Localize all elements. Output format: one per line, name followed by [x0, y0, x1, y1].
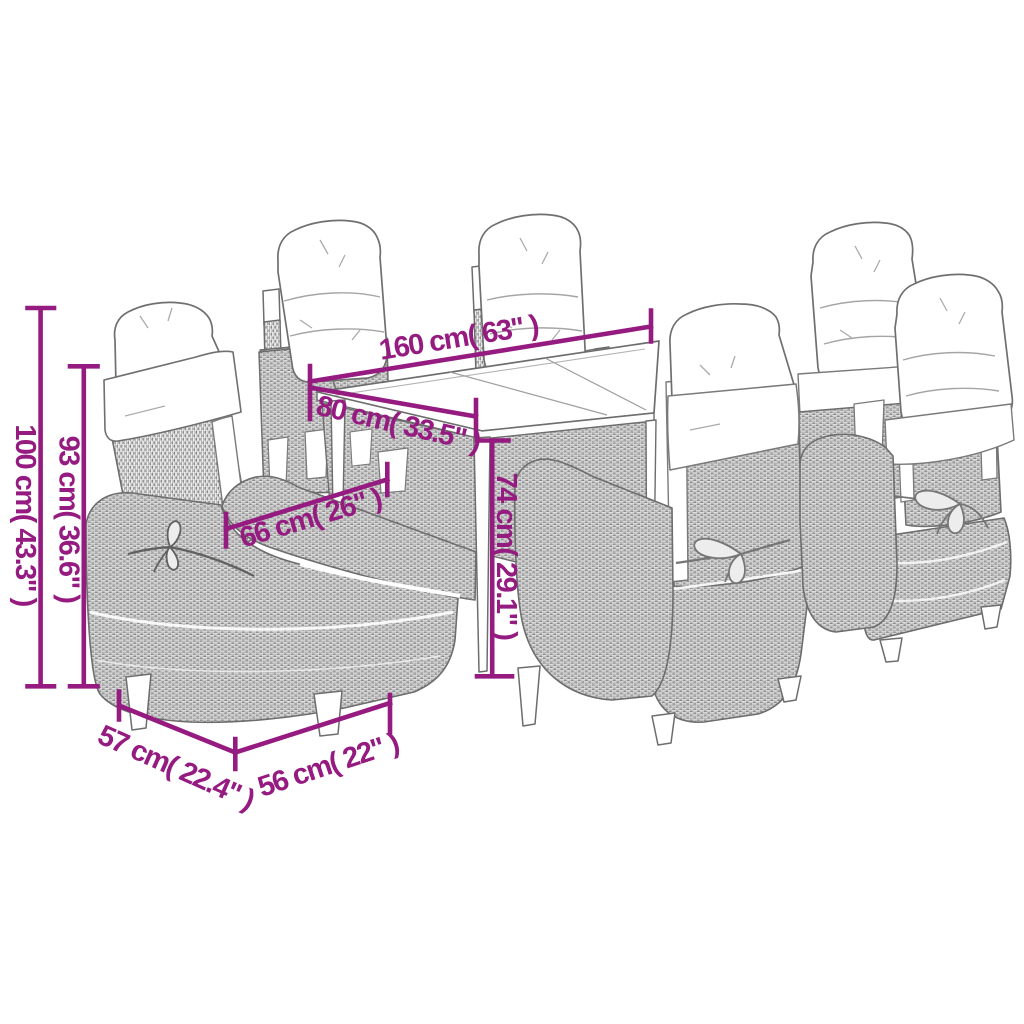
svg-text:74 cm( 29.1" ): 74 cm( 29.1" )	[490, 473, 522, 641]
svg-text:93 cm( 36.6" ): 93 cm( 36.6" )	[53, 436, 85, 604]
svg-text:100 cm( 43.3" ): 100 cm( 43.3" )	[9, 424, 41, 606]
